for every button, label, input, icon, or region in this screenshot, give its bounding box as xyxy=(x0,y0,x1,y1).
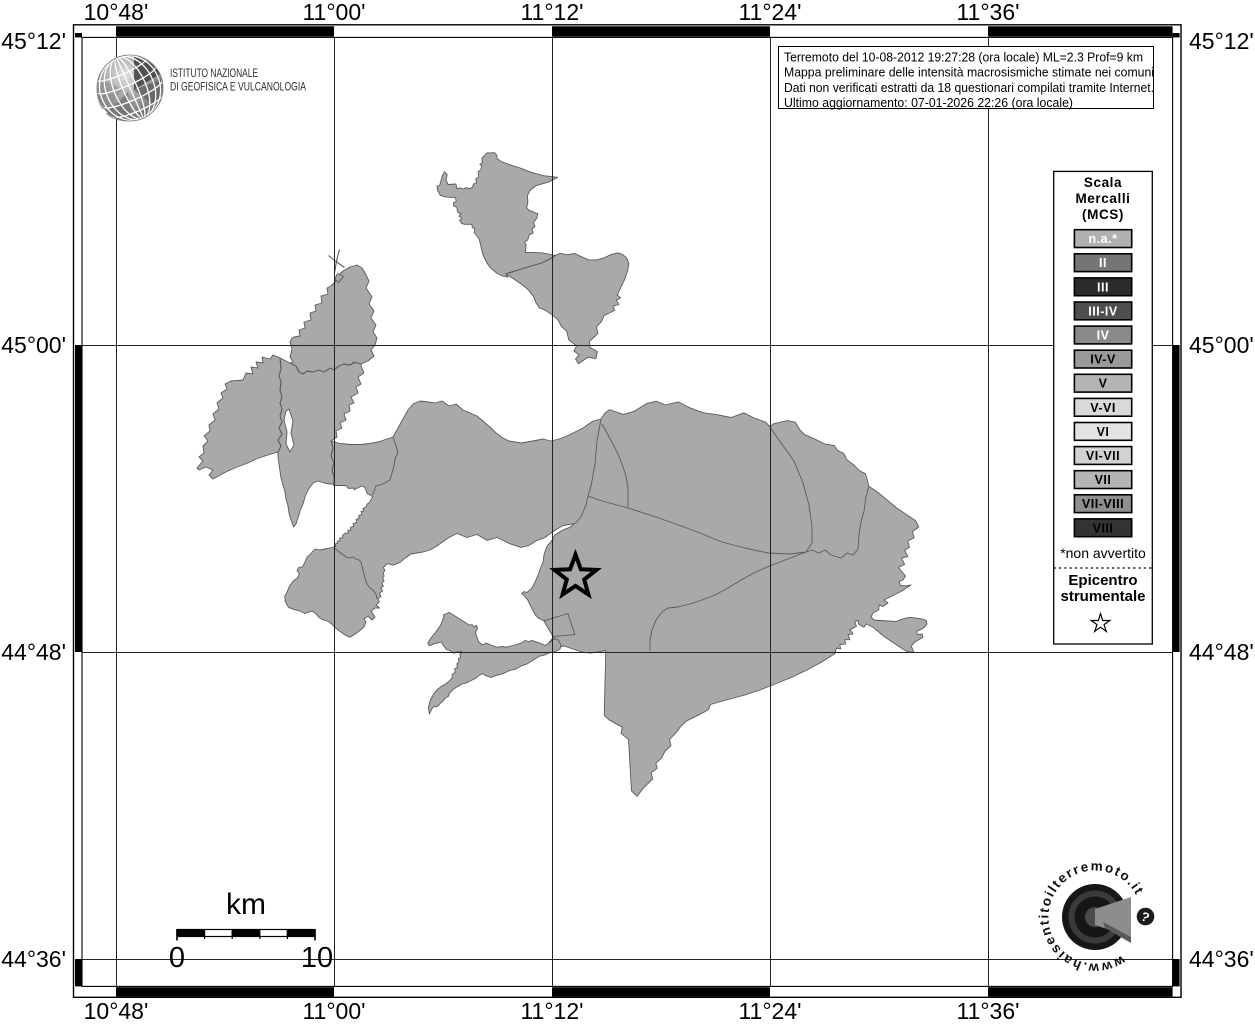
svg-text:11°12': 11°12' xyxy=(520,0,583,25)
svg-text:n.a.*: n.a.* xyxy=(1089,232,1118,246)
svg-text:DI GEOFISICA E VULCANOLOGIA: DI GEOFISICA E VULCANOLOGIA xyxy=(170,80,306,94)
svg-text:Scala: Scala xyxy=(1084,175,1122,190)
svg-text:VII: VII xyxy=(1095,473,1112,487)
svg-text:VII-VIII: VII-VIII xyxy=(1082,497,1124,511)
svg-text:VI-VII: VI-VII xyxy=(1086,449,1120,463)
svg-text:Epicentro: Epicentro xyxy=(1068,572,1137,589)
svg-text:VI: VI xyxy=(1097,425,1110,439)
svg-text:44°48': 44°48' xyxy=(1,639,66,665)
svg-text:strumentale: strumentale xyxy=(1060,588,1145,605)
svg-text:45°00': 45°00' xyxy=(1189,332,1254,358)
svg-text:Ultimo aggiornamento: 07-01-20: Ultimo aggiornamento: 07-01-2026 22:26 (… xyxy=(784,95,1073,110)
svg-text:IV-V: IV-V xyxy=(1090,353,1116,367)
svg-text:*non avvertito: *non avvertito xyxy=(1060,545,1146,561)
svg-text:11°36': 11°36' xyxy=(956,0,1019,25)
svg-text:(MCS): (MCS) xyxy=(1082,207,1124,222)
svg-text:IV: IV xyxy=(1097,329,1110,343)
svg-text:km: km xyxy=(226,888,266,921)
svg-text:11°24': 11°24' xyxy=(738,0,801,25)
svg-text:Mercalli: Mercalli xyxy=(1075,191,1130,206)
svg-text:ISTITUTO NAZIONALE: ISTITUTO NAZIONALE xyxy=(170,66,258,80)
svg-text:Terremoto del 10-08-2012 19:27: Terremoto del 10-08-2012 19:27:28 (ora l… xyxy=(784,49,1143,64)
svg-text:III-IV: III-IV xyxy=(1088,304,1118,318)
svg-text:44°48': 44°48' xyxy=(1189,639,1254,665)
svg-text:45°00': 45°00' xyxy=(1,332,66,358)
svg-text:Mappa preliminare delle intens: Mappa preliminare delle intensità macros… xyxy=(784,65,1154,80)
svg-text:V: V xyxy=(1099,377,1108,391)
svg-text:11°00': 11°00' xyxy=(302,998,365,1024)
svg-text:VIII: VIII xyxy=(1093,521,1114,535)
svg-text:44°36': 44°36' xyxy=(1189,946,1254,972)
svg-text:II: II xyxy=(1099,256,1107,270)
svg-text:11°24': 11°24' xyxy=(738,998,801,1024)
svg-text:11°36': 11°36' xyxy=(956,998,1019,1024)
svg-text:10°48': 10°48' xyxy=(84,998,149,1024)
svg-text:11°00': 11°00' xyxy=(302,0,365,25)
svg-text:V-VI: V-VI xyxy=(1090,401,1116,415)
svg-text:III: III xyxy=(1097,280,1109,294)
svg-text:44°36': 44°36' xyxy=(1,946,66,972)
svg-text:10: 10 xyxy=(301,942,333,974)
svg-text:Dati non verificati estratti d: Dati non verificati estratti da 18 quest… xyxy=(784,80,1154,95)
svg-text:45°12': 45°12' xyxy=(1189,28,1254,54)
svg-text:45°12': 45°12' xyxy=(1,28,66,54)
svg-text:0: 0 xyxy=(169,942,185,974)
svg-text:10°48': 10°48' xyxy=(84,0,149,25)
svg-text:11°12': 11°12' xyxy=(520,998,583,1024)
